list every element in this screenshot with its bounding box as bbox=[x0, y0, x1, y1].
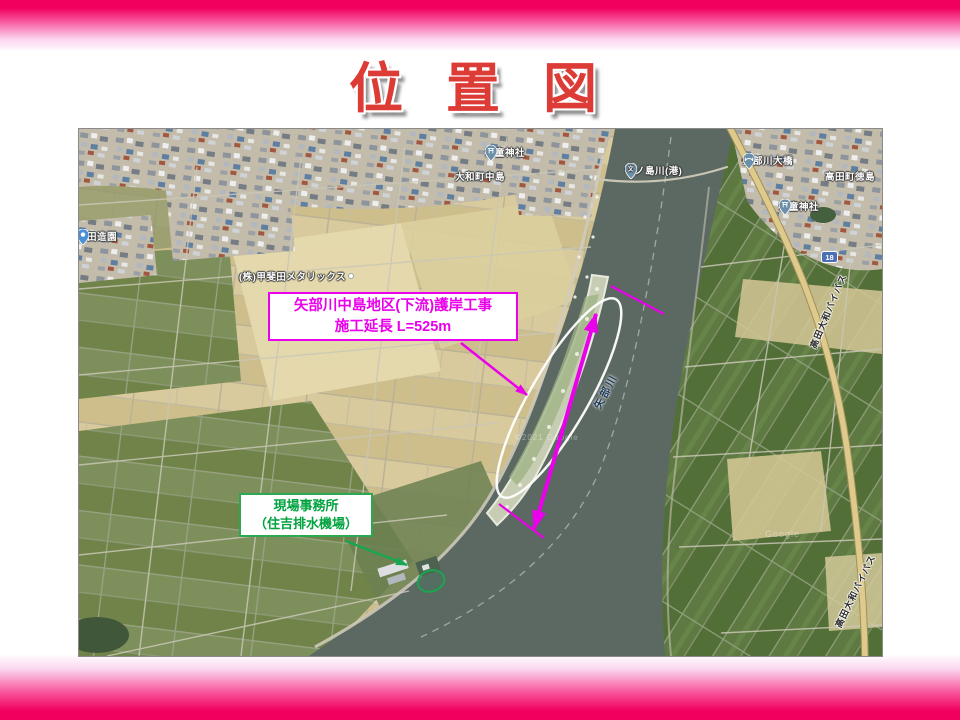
office-callout: 現場事務所 （住吉排水機場） bbox=[239, 493, 373, 537]
shrine-icon bbox=[779, 199, 791, 215]
poi-kaida-metallics: (株)甲斐田メタリックス bbox=[239, 269, 354, 283]
map-terrain bbox=[79, 129, 882, 656]
shrine-icon bbox=[485, 145, 497, 161]
poi-nakanoshima-port: 中ノ島川(港) 文 bbox=[625, 163, 682, 177]
bottom-gradient-bar bbox=[0, 654, 960, 720]
area-takatamachi-tokushima: 高田町徳島 bbox=[825, 169, 875, 183]
construction-callout-line2: 施工延長 L=525m bbox=[272, 317, 514, 338]
poi-nishida-zoen: 西田造園 bbox=[78, 229, 117, 243]
slide: 位 置 図 bbox=[0, 0, 960, 720]
poi-yabegawa-ohashi: 矢部川大橋 bbox=[743, 153, 793, 167]
school-icon: 文 bbox=[625, 163, 637, 179]
poi-kaido-shrine-1: 海童神社 bbox=[485, 145, 525, 159]
area-label: 高田町徳島 bbox=[825, 169, 875, 183]
poi-label: (株)甲斐田メタリックス bbox=[239, 269, 346, 283]
bridge-icon bbox=[743, 153, 755, 169]
map-pin-icon bbox=[78, 229, 89, 245]
office-callout-line2: （住吉排水機場） bbox=[241, 515, 371, 533]
top-gradient-bar bbox=[0, 0, 960, 50]
route-18-shield: 18 bbox=[821, 251, 838, 263]
marker-dot-icon bbox=[348, 273, 354, 279]
google-watermark: ©2021 Google bbox=[515, 433, 579, 442]
svg-text:文: 文 bbox=[627, 165, 635, 173]
office-callout-line1: 現場事務所 bbox=[241, 497, 371, 515]
google-watermark: Google bbox=[765, 529, 800, 539]
page-title: 位 置 図 bbox=[0, 44, 960, 123]
poi-kaido-shrine-2: 海童神社 bbox=[779, 199, 819, 213]
satellite-map: 西田造園 (株)甲斐田メタリックス 大和町中島 海童神社 中ノ島川(港) 文 bbox=[78, 128, 883, 657]
area-yamatomachi-nakashima: 大和町中島 bbox=[455, 169, 505, 183]
construction-callout-line1: 矢部川中島地区(下流)護岸工事 bbox=[272, 296, 514, 317]
construction-callout: 矢部川中島地区(下流)護岸工事 施工延長 L=525m bbox=[268, 292, 518, 341]
area-label: 大和町中島 bbox=[455, 169, 505, 183]
